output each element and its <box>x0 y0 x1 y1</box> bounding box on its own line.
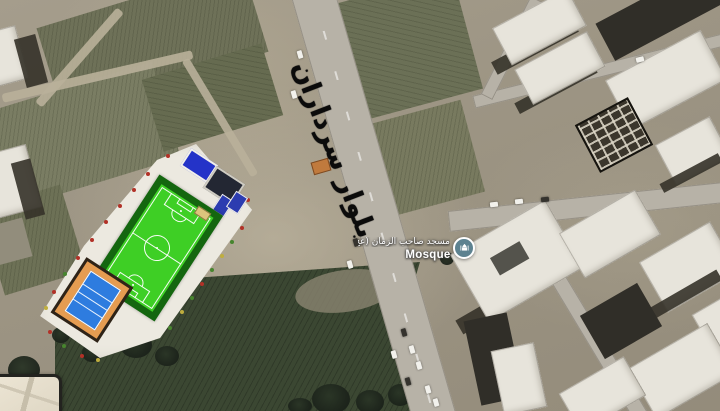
perimeter-marker <box>132 188 136 192</box>
perimeter-marker <box>146 172 150 176</box>
perimeter-marker <box>104 220 108 224</box>
perimeter-marker <box>80 354 84 358</box>
perimeter-marker <box>168 326 172 330</box>
perimeter-marker <box>210 268 214 272</box>
perimeter-marker <box>180 310 184 314</box>
perimeter-marker <box>48 330 52 334</box>
mosque-label-farsi[interactable]: مسجد صاحب الزمان (عج) <box>358 237 450 247</box>
attack-line <box>73 299 102 318</box>
perimeter-marker <box>76 256 80 260</box>
mosque-label-english[interactable]: Mosque <box>398 249 458 261</box>
perimeter-marker <box>220 254 224 258</box>
tree <box>155 346 179 366</box>
perimeter-marker <box>230 240 234 244</box>
mosque-icon <box>459 243 470 254</box>
perimeter-marker <box>166 154 170 158</box>
perimeter-marker <box>62 344 66 348</box>
perimeter-marker <box>200 282 204 286</box>
perimeter-marker <box>118 204 122 208</box>
car <box>515 199 523 205</box>
perimeter-marker <box>90 238 94 242</box>
perimeter-marker <box>52 290 56 294</box>
car <box>346 260 353 269</box>
minimap-inset[interactable] <box>0 374 62 411</box>
perimeter-marker <box>96 358 100 362</box>
tree <box>288 398 312 411</box>
tree <box>312 384 350 411</box>
tree <box>356 390 384 411</box>
car <box>490 202 498 208</box>
perimeter-marker <box>44 306 48 310</box>
perimeter-marker <box>190 296 194 300</box>
perimeter-marker <box>240 226 244 230</box>
net-line <box>78 291 107 310</box>
roof-structure <box>490 241 529 275</box>
car <box>541 197 549 203</box>
satellite-map-canvas: بلوار سرداران مسجد صاحب الزمان (عج) Mosq… <box>0 0 720 411</box>
perimeter-marker <box>63 272 67 276</box>
attack-line <box>83 284 112 303</box>
